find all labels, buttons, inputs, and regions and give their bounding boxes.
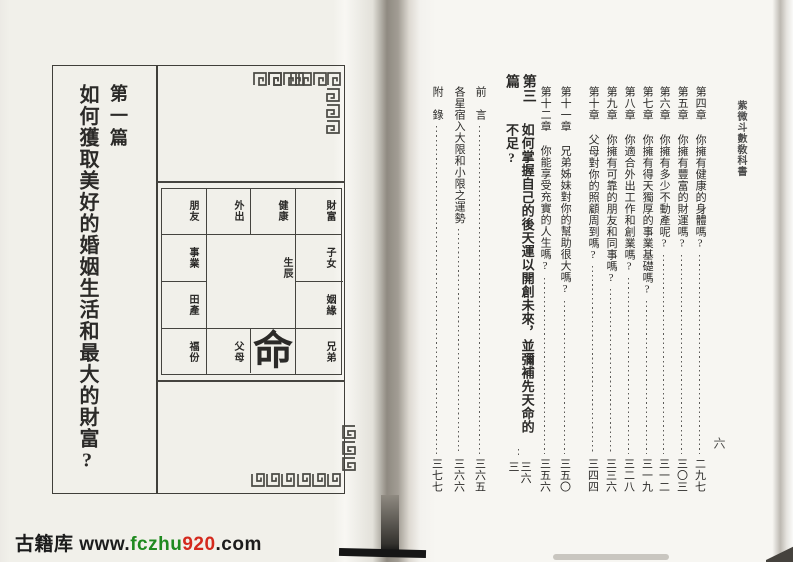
toc-chapter-label: 第十一章 bbox=[558, 86, 571, 132]
toc-chapter-label: 第五章 bbox=[675, 86, 688, 121]
toc-chapter-label: 第十章 bbox=[586, 86, 599, 121]
dot-leader bbox=[543, 278, 546, 454]
palace-children: 子女 bbox=[324, 247, 334, 269]
running-header-book-title: 紫微斗數敎科書 bbox=[733, 100, 748, 177]
toc-entry-title: 各星宿入大限和小限之運勢 bbox=[452, 86, 465, 224]
gutter-shadow bbox=[381, 495, 399, 552]
toc-page-number: 三六三 bbox=[507, 461, 531, 492]
toc-page-number: 三四四 bbox=[586, 458, 598, 493]
palace-marriage: 姻緣 bbox=[324, 294, 334, 316]
meander-ornament-bottom-vertical bbox=[341, 424, 357, 472]
toc-page-number: 三六六 bbox=[452, 458, 464, 493]
toc-chapter-title: 你擁有健康的身體嗎? bbox=[693, 134, 706, 250]
dot-leader bbox=[478, 126, 481, 454]
toc-chapter-title: 你能享受充實的人生嗎? bbox=[538, 145, 551, 273]
dot-leader bbox=[457, 229, 460, 454]
meander-ornament-bottom-horizontal bbox=[250, 472, 342, 488]
toc-page-number: 三七七 bbox=[430, 458, 442, 493]
dot-leader bbox=[563, 301, 566, 454]
toc-chapter-label: 第八章 bbox=[622, 86, 635, 121]
toc-chapter-title: 你擁有可靠的朋友和同事嗎? bbox=[604, 134, 617, 285]
toc-item-ch12: 第十二章 你能享受充實的人生嗎? 三五六 bbox=[537, 86, 552, 492]
palace-property: 田產 bbox=[187, 294, 197, 316]
toc-item-appendix: 附 錄 三七七 bbox=[429, 86, 444, 492]
part-one-label: 第一篇 bbox=[109, 84, 127, 150]
palace-siblings: 兄弟 bbox=[324, 341, 334, 363]
dot-leader bbox=[627, 278, 630, 454]
toc-page-number: 二九七 bbox=[693, 458, 705, 493]
dot-leader bbox=[662, 255, 665, 454]
center-birth-label: 生辰 bbox=[281, 257, 291, 279]
toc-page-number: 三〇三 bbox=[675, 458, 687, 493]
dot-leader bbox=[680, 255, 683, 454]
frame-section-line-top bbox=[157, 181, 345, 183]
toc-page-number: 三五〇 bbox=[558, 458, 570, 493]
toc-chapter-label: 第四章 bbox=[693, 86, 706, 121]
watermark-url-suffix: .com bbox=[216, 534, 262, 555]
palace-career: 事業 bbox=[187, 247, 197, 269]
toc-chapter-title: 你擁有豐富的財運嗎? bbox=[675, 134, 688, 250]
frame-divider-line bbox=[156, 65, 158, 494]
watermark-site-name: 古籍库 bbox=[15, 534, 74, 555]
toc-chapter-title: 你適合外出工作和創業嗎? bbox=[622, 134, 635, 273]
scan-smudge bbox=[553, 554, 669, 560]
toc-chapter-label: 第七章 bbox=[640, 86, 653, 121]
dot-leader bbox=[518, 449, 521, 457]
toc-page-number: 三五六 bbox=[538, 458, 550, 493]
toc-page-number: 三二八 bbox=[622, 458, 634, 493]
palace-travel: 外出 bbox=[232, 200, 242, 222]
meander-ornament-top-horizontal bbox=[252, 71, 342, 87]
toc-part-label: 第三篇 bbox=[502, 74, 536, 114]
watermark-url-green: fczhu bbox=[130, 534, 182, 555]
toc-page-number: 三三六 bbox=[604, 458, 616, 493]
toc-item-ch10: 第十章 父母對你的照顧周到嗎? 三四四 bbox=[585, 86, 600, 492]
dot-leader bbox=[591, 266, 594, 454]
toc-chapter-title: 你擁有得天獨厚的事業基礎嗎? bbox=[640, 134, 653, 296]
dot-leader bbox=[645, 301, 648, 454]
palace-parents: 父母 bbox=[232, 341, 242, 363]
frame-section-line-bottom bbox=[157, 380, 345, 382]
toc-chapter-label: 第十二章 bbox=[538, 86, 551, 132]
watermark-url-red: 920 bbox=[182, 534, 215, 555]
toc-entry-title: 附 錄 bbox=[430, 86, 443, 121]
scan-corner-shadow bbox=[766, 545, 793, 562]
destiny-character: 命 bbox=[251, 328, 295, 373]
toc-item-ch5: 第五章 你擁有豐富的財運嗎? 三〇三 bbox=[674, 86, 689, 492]
book-spread-scan: 第一篇 如何獲取美好的婚姻生活和最大的財富? 朋友 外出 健康 財富 事業 子女… bbox=[0, 0, 793, 562]
toc-item-ch8: 第八章 你適合外出工作和創業嗎? 三二八 bbox=[621, 86, 636, 492]
toc-chapter-title: 父母對你的照顧周到嗎? bbox=[586, 134, 599, 262]
toc-chapter-title: 兄弟姊妹對你的幫助很大嗎? bbox=[558, 145, 571, 296]
toc-item-ch9: 第九章 你擁有可靠的朋友和同事嗎? 三三六 bbox=[603, 86, 618, 492]
toc-chapter-label: 第六章 bbox=[657, 86, 670, 121]
toc-page-number: 三一九 bbox=[640, 458, 652, 493]
grid-line bbox=[295, 281, 343, 282]
toc-item-ch7: 第七章 你擁有得天獨厚的事業基礎嗎? 三一九 bbox=[639, 86, 654, 492]
palace-health: 健康 bbox=[276, 200, 286, 222]
toc-item-part3: 第三篇 如何掌握自己的後天運以開創未來，並彌補先天命的不足? 三六三 bbox=[503, 74, 535, 492]
palace-friends: 朋友 bbox=[187, 200, 197, 222]
toc-chapter-label: 第九章 bbox=[604, 86, 617, 121]
toc-item-ch11: 第十一章 兄弟姊妹對你的幫助很大嗎? 三五〇 bbox=[557, 86, 572, 492]
dot-leader bbox=[698, 255, 701, 454]
dot-leader bbox=[435, 126, 438, 454]
grid-line bbox=[250, 189, 251, 235]
grid-line bbox=[162, 281, 206, 282]
watermark: 古籍库 www.fczhu920.com bbox=[15, 529, 262, 556]
palace-chart: 朋友 外出 健康 財富 事業 子女 田產 姻緣 福份 父母 兄弟 生辰 命 bbox=[161, 188, 342, 375]
scan-edge-bar bbox=[339, 548, 426, 558]
grid-line bbox=[206, 189, 207, 374]
toc-entry-title: 前 言 bbox=[473, 86, 486, 121]
toc-item-foreword: 前 言 三六五 bbox=[472, 86, 487, 492]
part-one-title: 如何獲取美好的婚姻生活和最大的財富? bbox=[77, 84, 97, 473]
dot-leader bbox=[609, 289, 612, 454]
meander-ornament-top-vertical bbox=[325, 87, 341, 135]
toc-chapter-title: 你擁有多少不動產呢? bbox=[657, 134, 670, 250]
palace-wealth: 財富 bbox=[324, 200, 334, 222]
page-folio-number: 六 bbox=[711, 437, 728, 449]
toc-item-ch4: 第四章 你擁有健康的身體嗎? 二九七 bbox=[692, 86, 707, 492]
toc-item-ch6: 第六章 你擁有多少不動產呢? 三一二 bbox=[656, 86, 671, 492]
toc-item-star-fortunes: 各星宿入大限和小限之運勢 三六六 bbox=[451, 86, 466, 492]
grid-line bbox=[162, 234, 341, 235]
toc-part-title: 如何掌握自己的後天運以開創未來，並彌補先天命的不足? bbox=[503, 123, 534, 444]
watermark-url-prefix: www. bbox=[74, 534, 131, 555]
toc-page-number: 三一二 bbox=[657, 458, 669, 493]
palace-fortune: 福份 bbox=[187, 341, 197, 363]
toc-page-number: 三六五 bbox=[473, 458, 485, 493]
